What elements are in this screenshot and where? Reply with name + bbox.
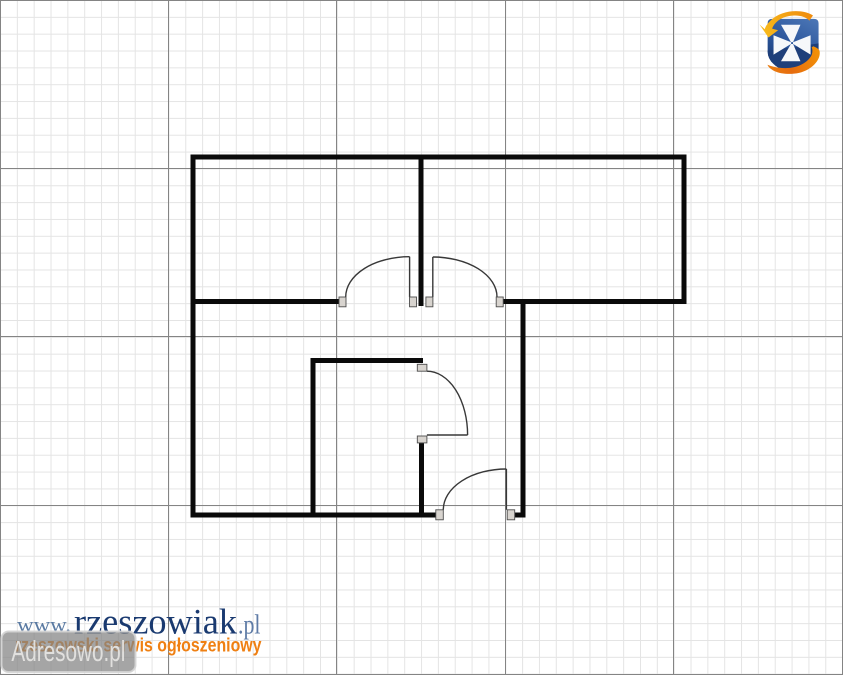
svg-text:Adresowo.pl: Adresowo.pl (11, 636, 125, 668)
